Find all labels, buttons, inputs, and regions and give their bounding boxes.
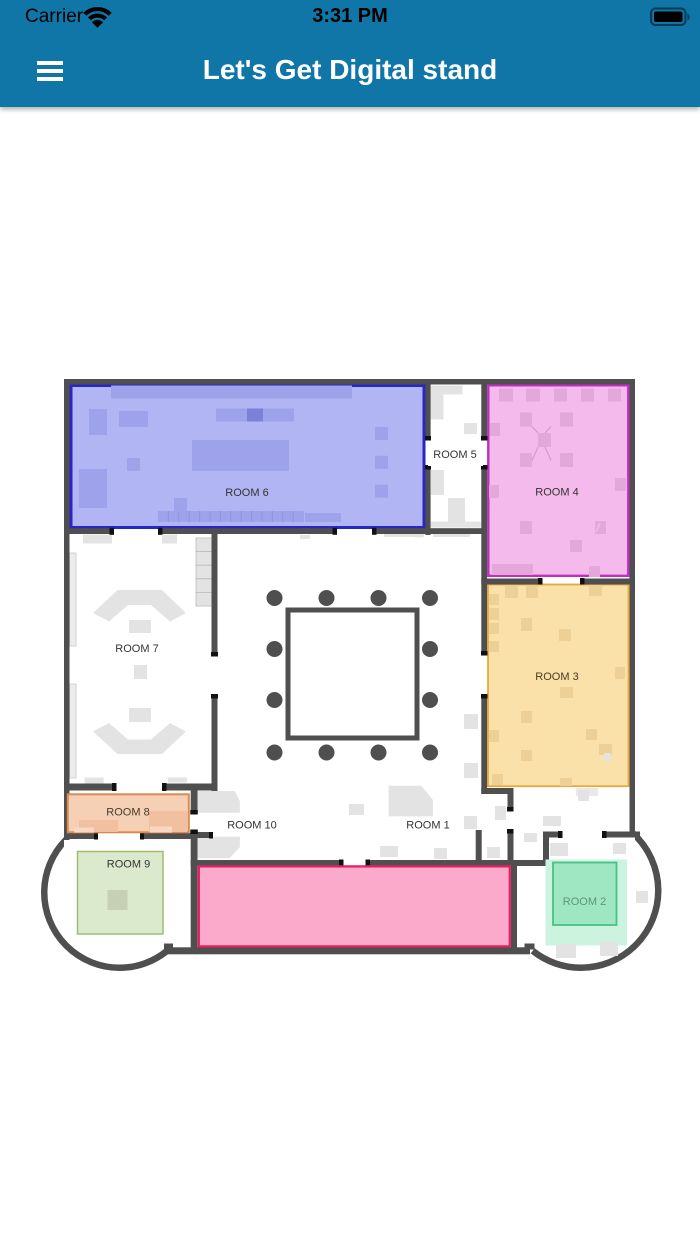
svg-text:ROOM 4: ROOM 4: [535, 487, 578, 499]
svg-text:ROOM 2: ROOM 2: [563, 896, 606, 908]
svg-text:ROOM 1: ROOM 1: [406, 820, 449, 832]
svg-text:ROOM 10: ROOM 10: [227, 820, 277, 832]
svg-text:ROOM 8: ROOM 8: [106, 807, 149, 819]
svg-text:ROOM 6: ROOM 6: [225, 487, 268, 499]
svg-text:ROOM 3: ROOM 3: [535, 671, 578, 683]
svg-text:ROOM 5: ROOM 5: [433, 449, 476, 461]
svg-text:ROOM 9: ROOM 9: [107, 859, 150, 871]
svg-text:ROOM 7: ROOM 7: [115, 643, 158, 655]
